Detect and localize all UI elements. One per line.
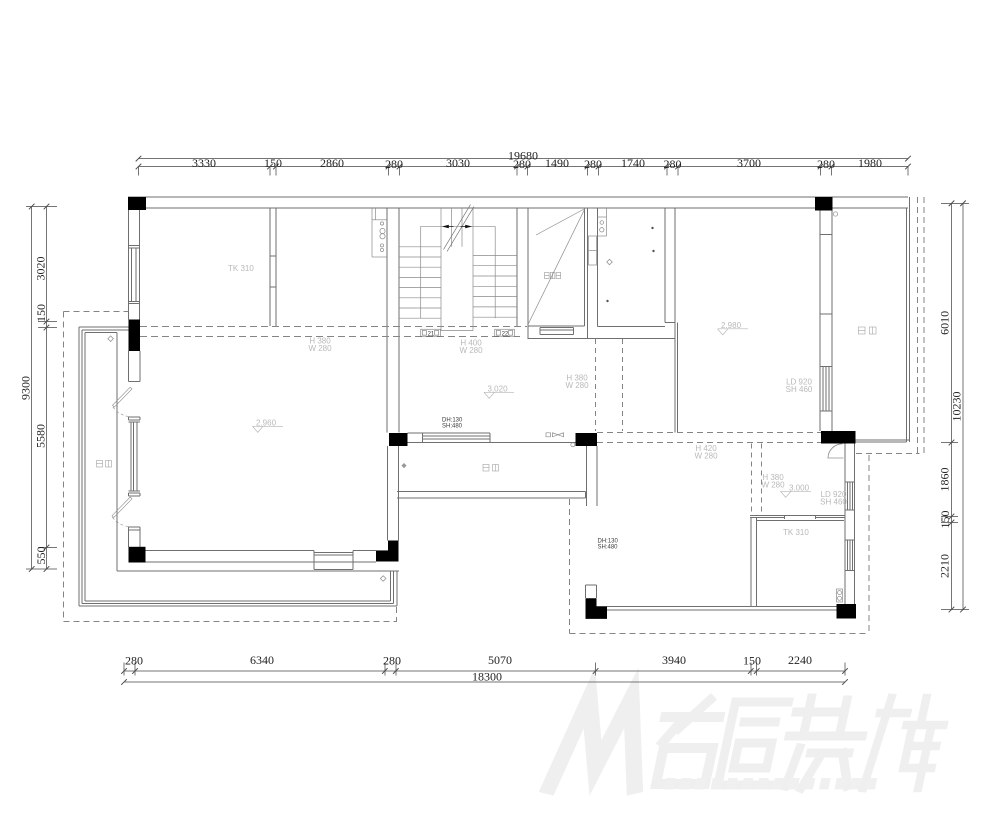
svg-text:SH 460: SH 460 [786, 385, 813, 394]
svg-text:W 280: W 280 [459, 346, 483, 355]
svg-text:SH:480: SH:480 [598, 545, 619, 551]
svg-text:21: 21 [428, 331, 435, 337]
svg-text:150: 150 [938, 511, 952, 529]
svg-text:5580: 5580 [34, 424, 48, 448]
svg-text:280: 280 [513, 157, 531, 171]
svg-text:W 280: W 280 [694, 452, 718, 461]
svg-text:SH:480: SH:480 [442, 424, 463, 430]
svg-text:W 280: W 280 [308, 344, 332, 353]
svg-text:280: 280 [584, 157, 602, 171]
svg-text:280: 280 [383, 654, 401, 668]
svg-text:2210: 2210 [938, 554, 952, 578]
svg-text:550: 550 [34, 547, 48, 565]
svg-text:2240: 2240 [788, 653, 812, 667]
svg-text:2.980: 2.980 [721, 321, 742, 330]
svg-text:18300: 18300 [472, 670, 502, 684]
svg-text:3330: 3330 [192, 156, 216, 170]
svg-text:22: 22 [502, 331, 509, 337]
svg-text:9300: 9300 [19, 376, 33, 400]
svg-text:6010: 6010 [938, 311, 952, 335]
svg-text:10230: 10230 [950, 392, 964, 422]
svg-text:3940: 3940 [662, 653, 686, 667]
svg-text:TK 310: TK 310 [783, 528, 809, 537]
svg-text:1980: 1980 [858, 156, 882, 170]
svg-text:3030: 3030 [446, 156, 470, 170]
svg-text:3.000: 3.000 [789, 484, 810, 493]
svg-text:3700: 3700 [737, 156, 761, 170]
svg-text:2860: 2860 [320, 156, 344, 170]
svg-text:150: 150 [34, 304, 48, 322]
svg-text:SH 460: SH 460 [820, 498, 847, 507]
svg-text:280: 280 [385, 157, 403, 171]
svg-text:2.960: 2.960 [256, 419, 277, 428]
svg-text:150: 150 [743, 654, 761, 668]
svg-text:280: 280 [125, 654, 143, 668]
svg-text:280: 280 [664, 157, 682, 171]
svg-text:280: 280 [817, 157, 835, 171]
svg-text:3020: 3020 [34, 257, 48, 281]
svg-text:1860: 1860 [938, 468, 952, 492]
svg-text:1490: 1490 [545, 156, 569, 170]
svg-text:W 280: W 280 [761, 481, 785, 490]
svg-text:3.020: 3.020 [488, 385, 509, 394]
svg-text:150: 150 [264, 156, 282, 170]
svg-text:TK 310: TK 310 [228, 264, 254, 273]
svg-text:5070: 5070 [488, 653, 512, 667]
svg-text:1740: 1740 [621, 156, 645, 170]
svg-text:W 280: W 280 [565, 381, 589, 390]
svg-text:6340: 6340 [250, 653, 274, 667]
